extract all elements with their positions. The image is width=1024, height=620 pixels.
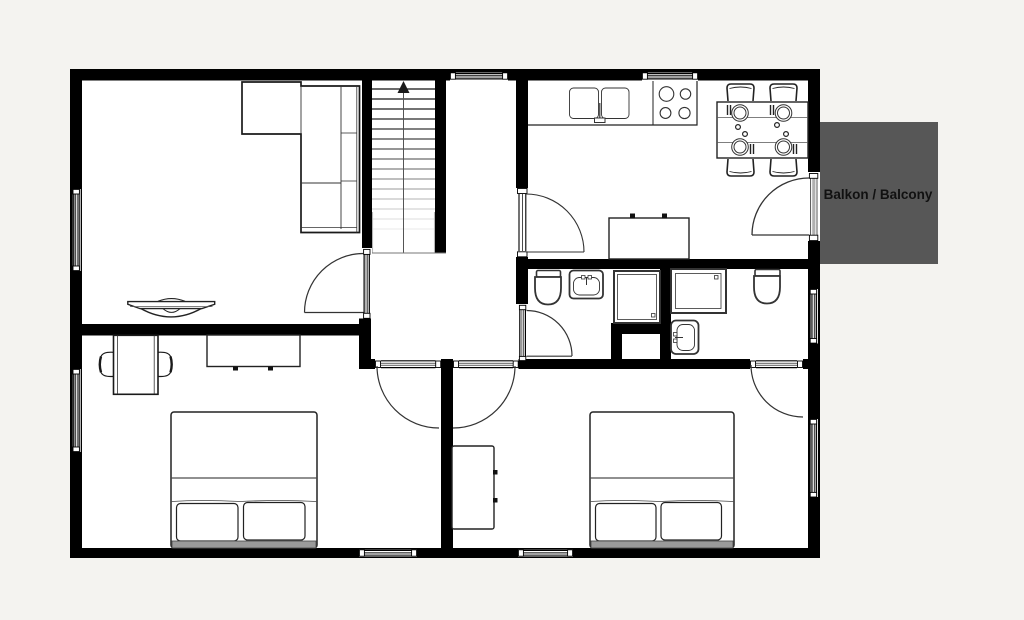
svg-text:Balkon / Balcony: Balkon / Balcony [824,187,933,202]
